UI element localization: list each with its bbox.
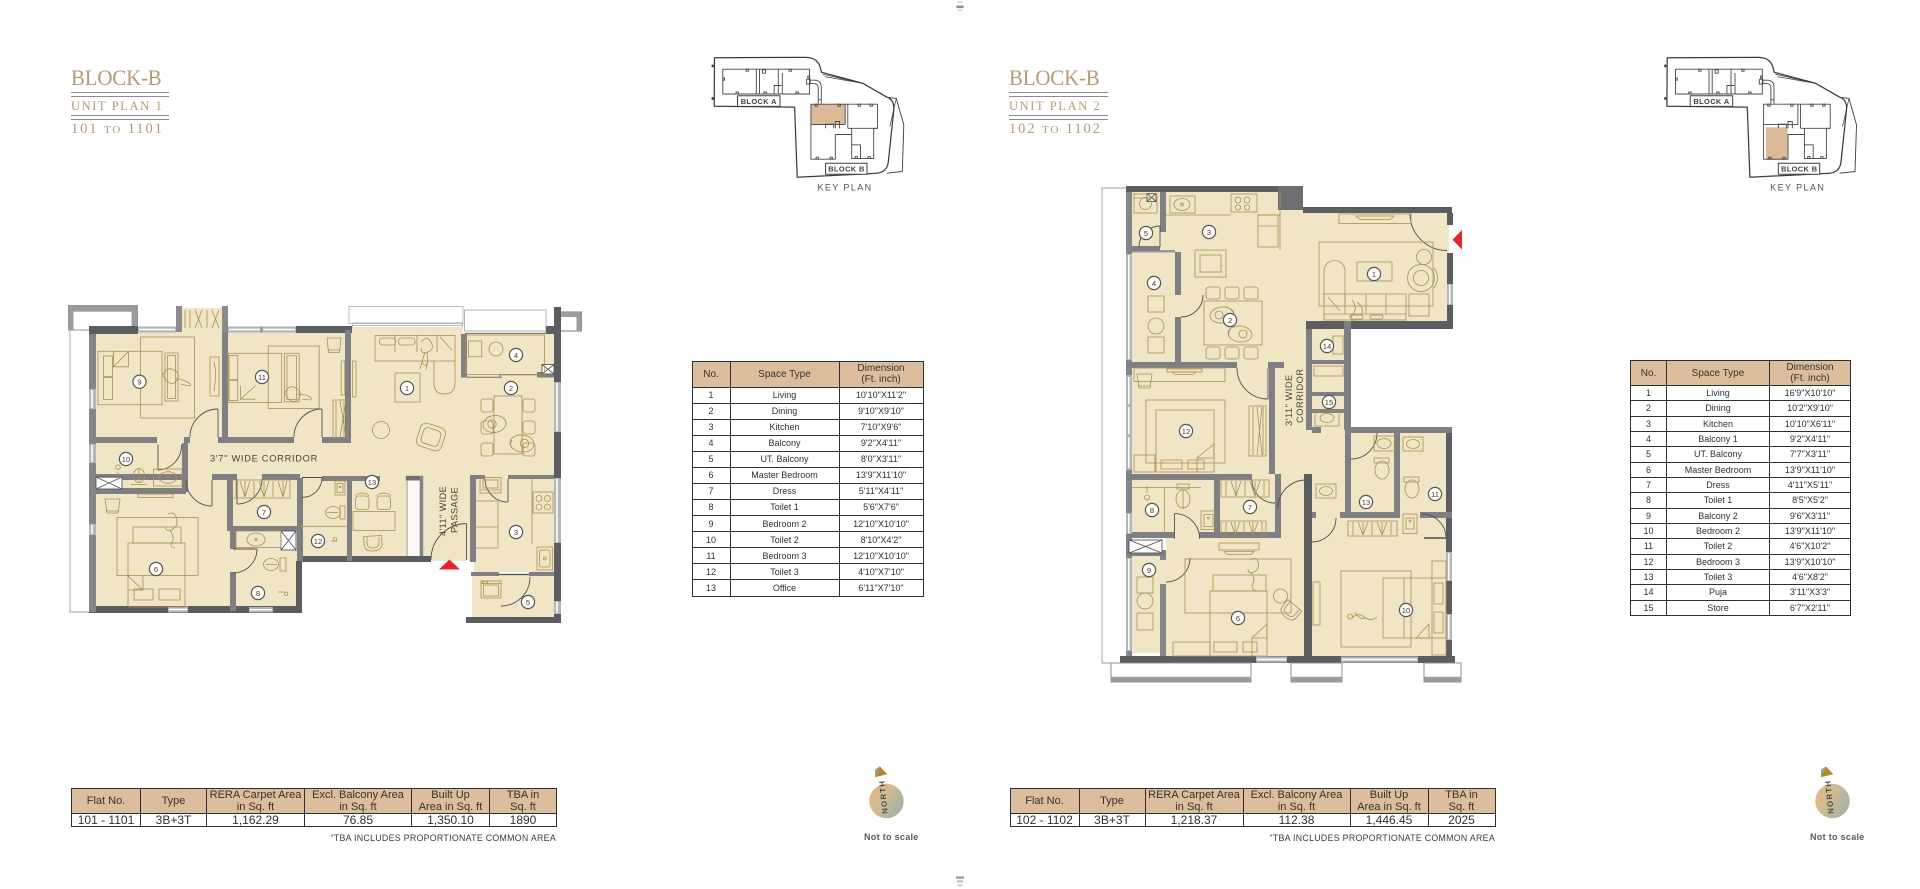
- svg-text:5: 5: [526, 598, 530, 607]
- svg-text:11: 11: [258, 373, 266, 382]
- svg-text:9: 9: [1147, 566, 1151, 575]
- svg-text:9: 9: [137, 378, 141, 387]
- svg-text:3: 3: [1207, 228, 1211, 237]
- svg-text:7: 7: [1248, 503, 1252, 512]
- svg-text:3'7" WIDE CORRIDOR: 3'7" WIDE CORRIDOR: [210, 454, 318, 464]
- svg-text:4'11" WIDE: 4'11" WIDE: [438, 486, 448, 536]
- svg-text:10: 10: [1402, 606, 1410, 615]
- svg-text:11: 11: [1431, 490, 1439, 499]
- svg-text:2: 2: [1228, 316, 1232, 325]
- svg-text:8: 8: [1150, 506, 1154, 515]
- svg-text:1: 1: [1372, 270, 1376, 279]
- svg-text:10: 10: [122, 455, 130, 464]
- svg-text:6: 6: [154, 565, 158, 574]
- svg-text:12: 12: [314, 537, 322, 546]
- svg-text:13: 13: [368, 478, 376, 487]
- svg-text:3: 3: [514, 528, 518, 537]
- svg-text:7: 7: [262, 508, 266, 517]
- svg-text:15: 15: [1325, 398, 1333, 407]
- svg-text:4: 4: [514, 351, 518, 360]
- svg-text:6: 6: [1236, 614, 1240, 623]
- svg-text:2: 2: [509, 384, 513, 393]
- svg-text:8: 8: [256, 589, 260, 598]
- svg-text:14: 14: [1323, 342, 1331, 351]
- svg-text:13: 13: [1362, 498, 1370, 507]
- svg-text:CORRIDOR: CORRIDOR: [1295, 368, 1305, 423]
- svg-text:3'11" WIDE: 3'11" WIDE: [1284, 374, 1294, 426]
- svg-text:1: 1: [405, 384, 409, 393]
- svg-text:12: 12: [1182, 427, 1190, 436]
- svg-text:PASSAGE: PASSAGE: [450, 487, 460, 533]
- svg-text:5: 5: [1144, 229, 1148, 238]
- svg-text:4: 4: [1152, 279, 1156, 288]
